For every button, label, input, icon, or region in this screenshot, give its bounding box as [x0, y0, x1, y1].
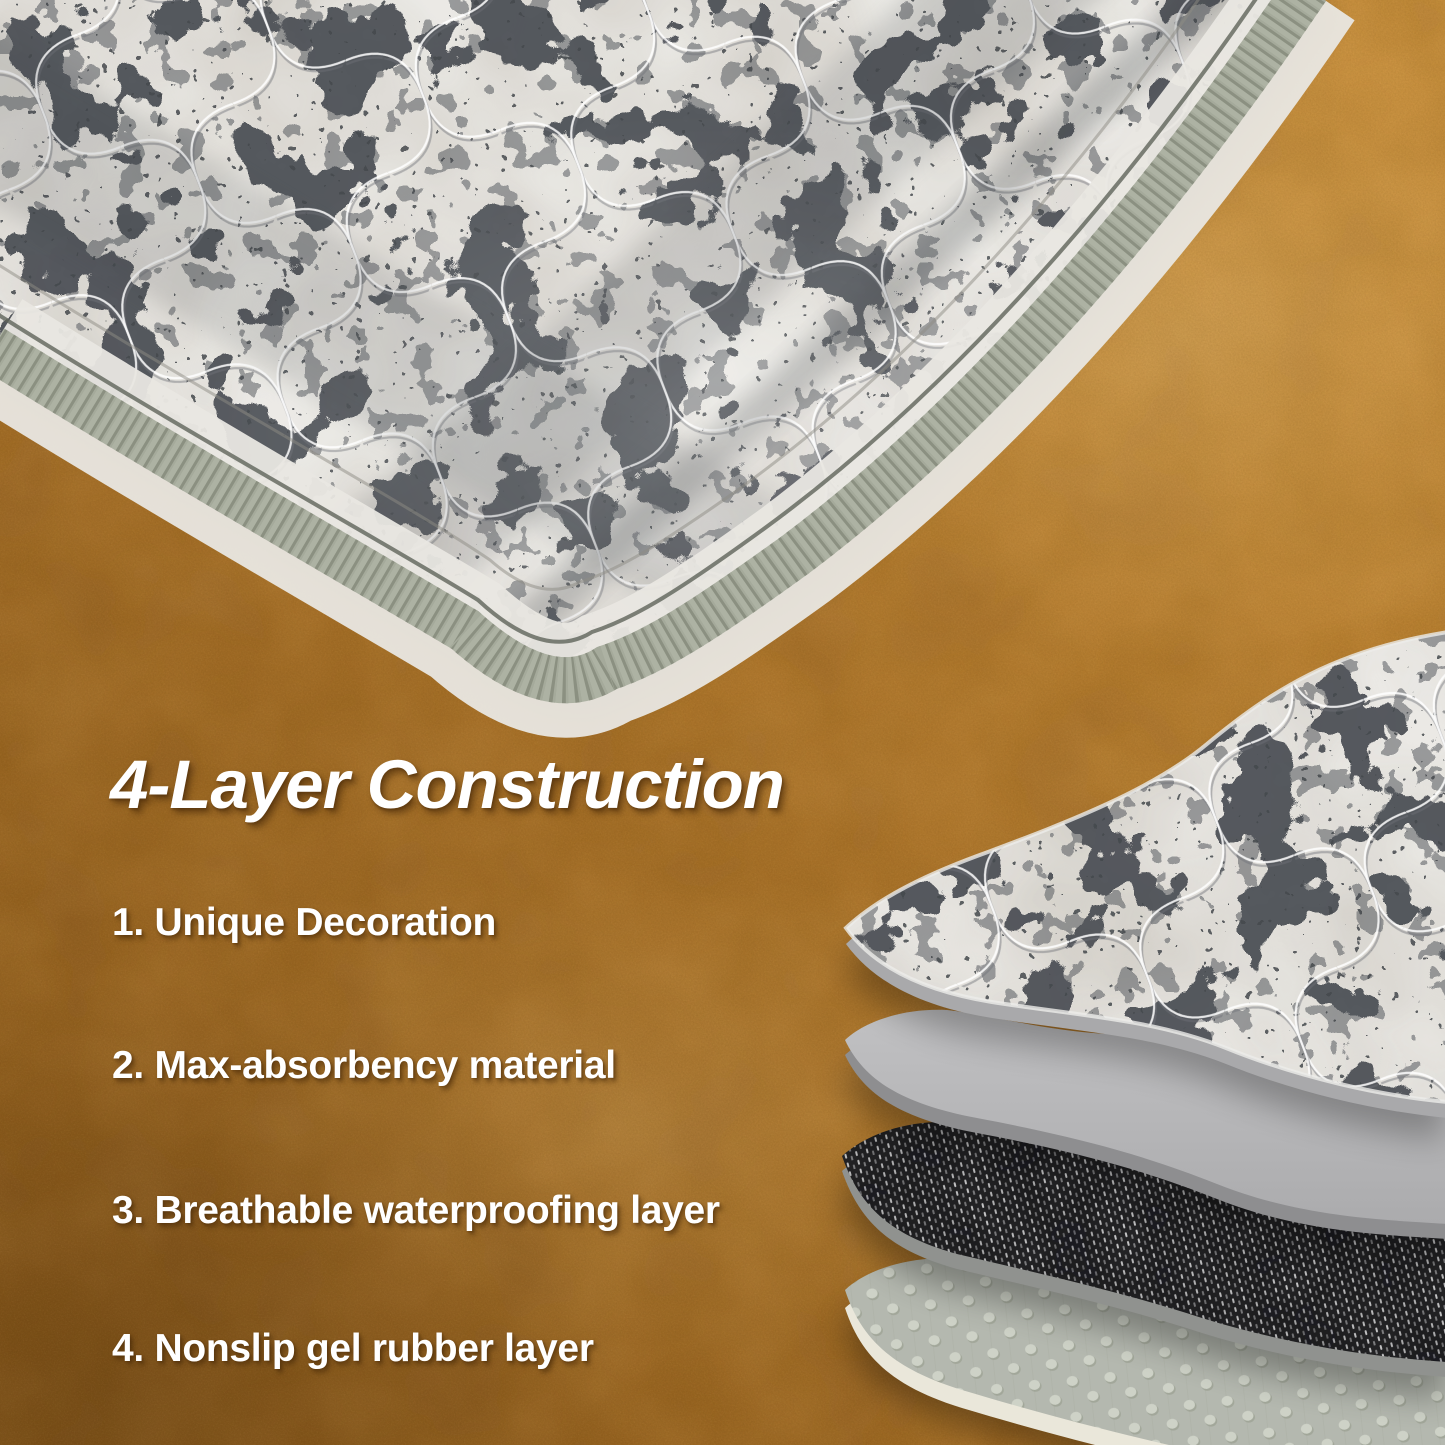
product-photo: [0, 0, 1445, 1445]
